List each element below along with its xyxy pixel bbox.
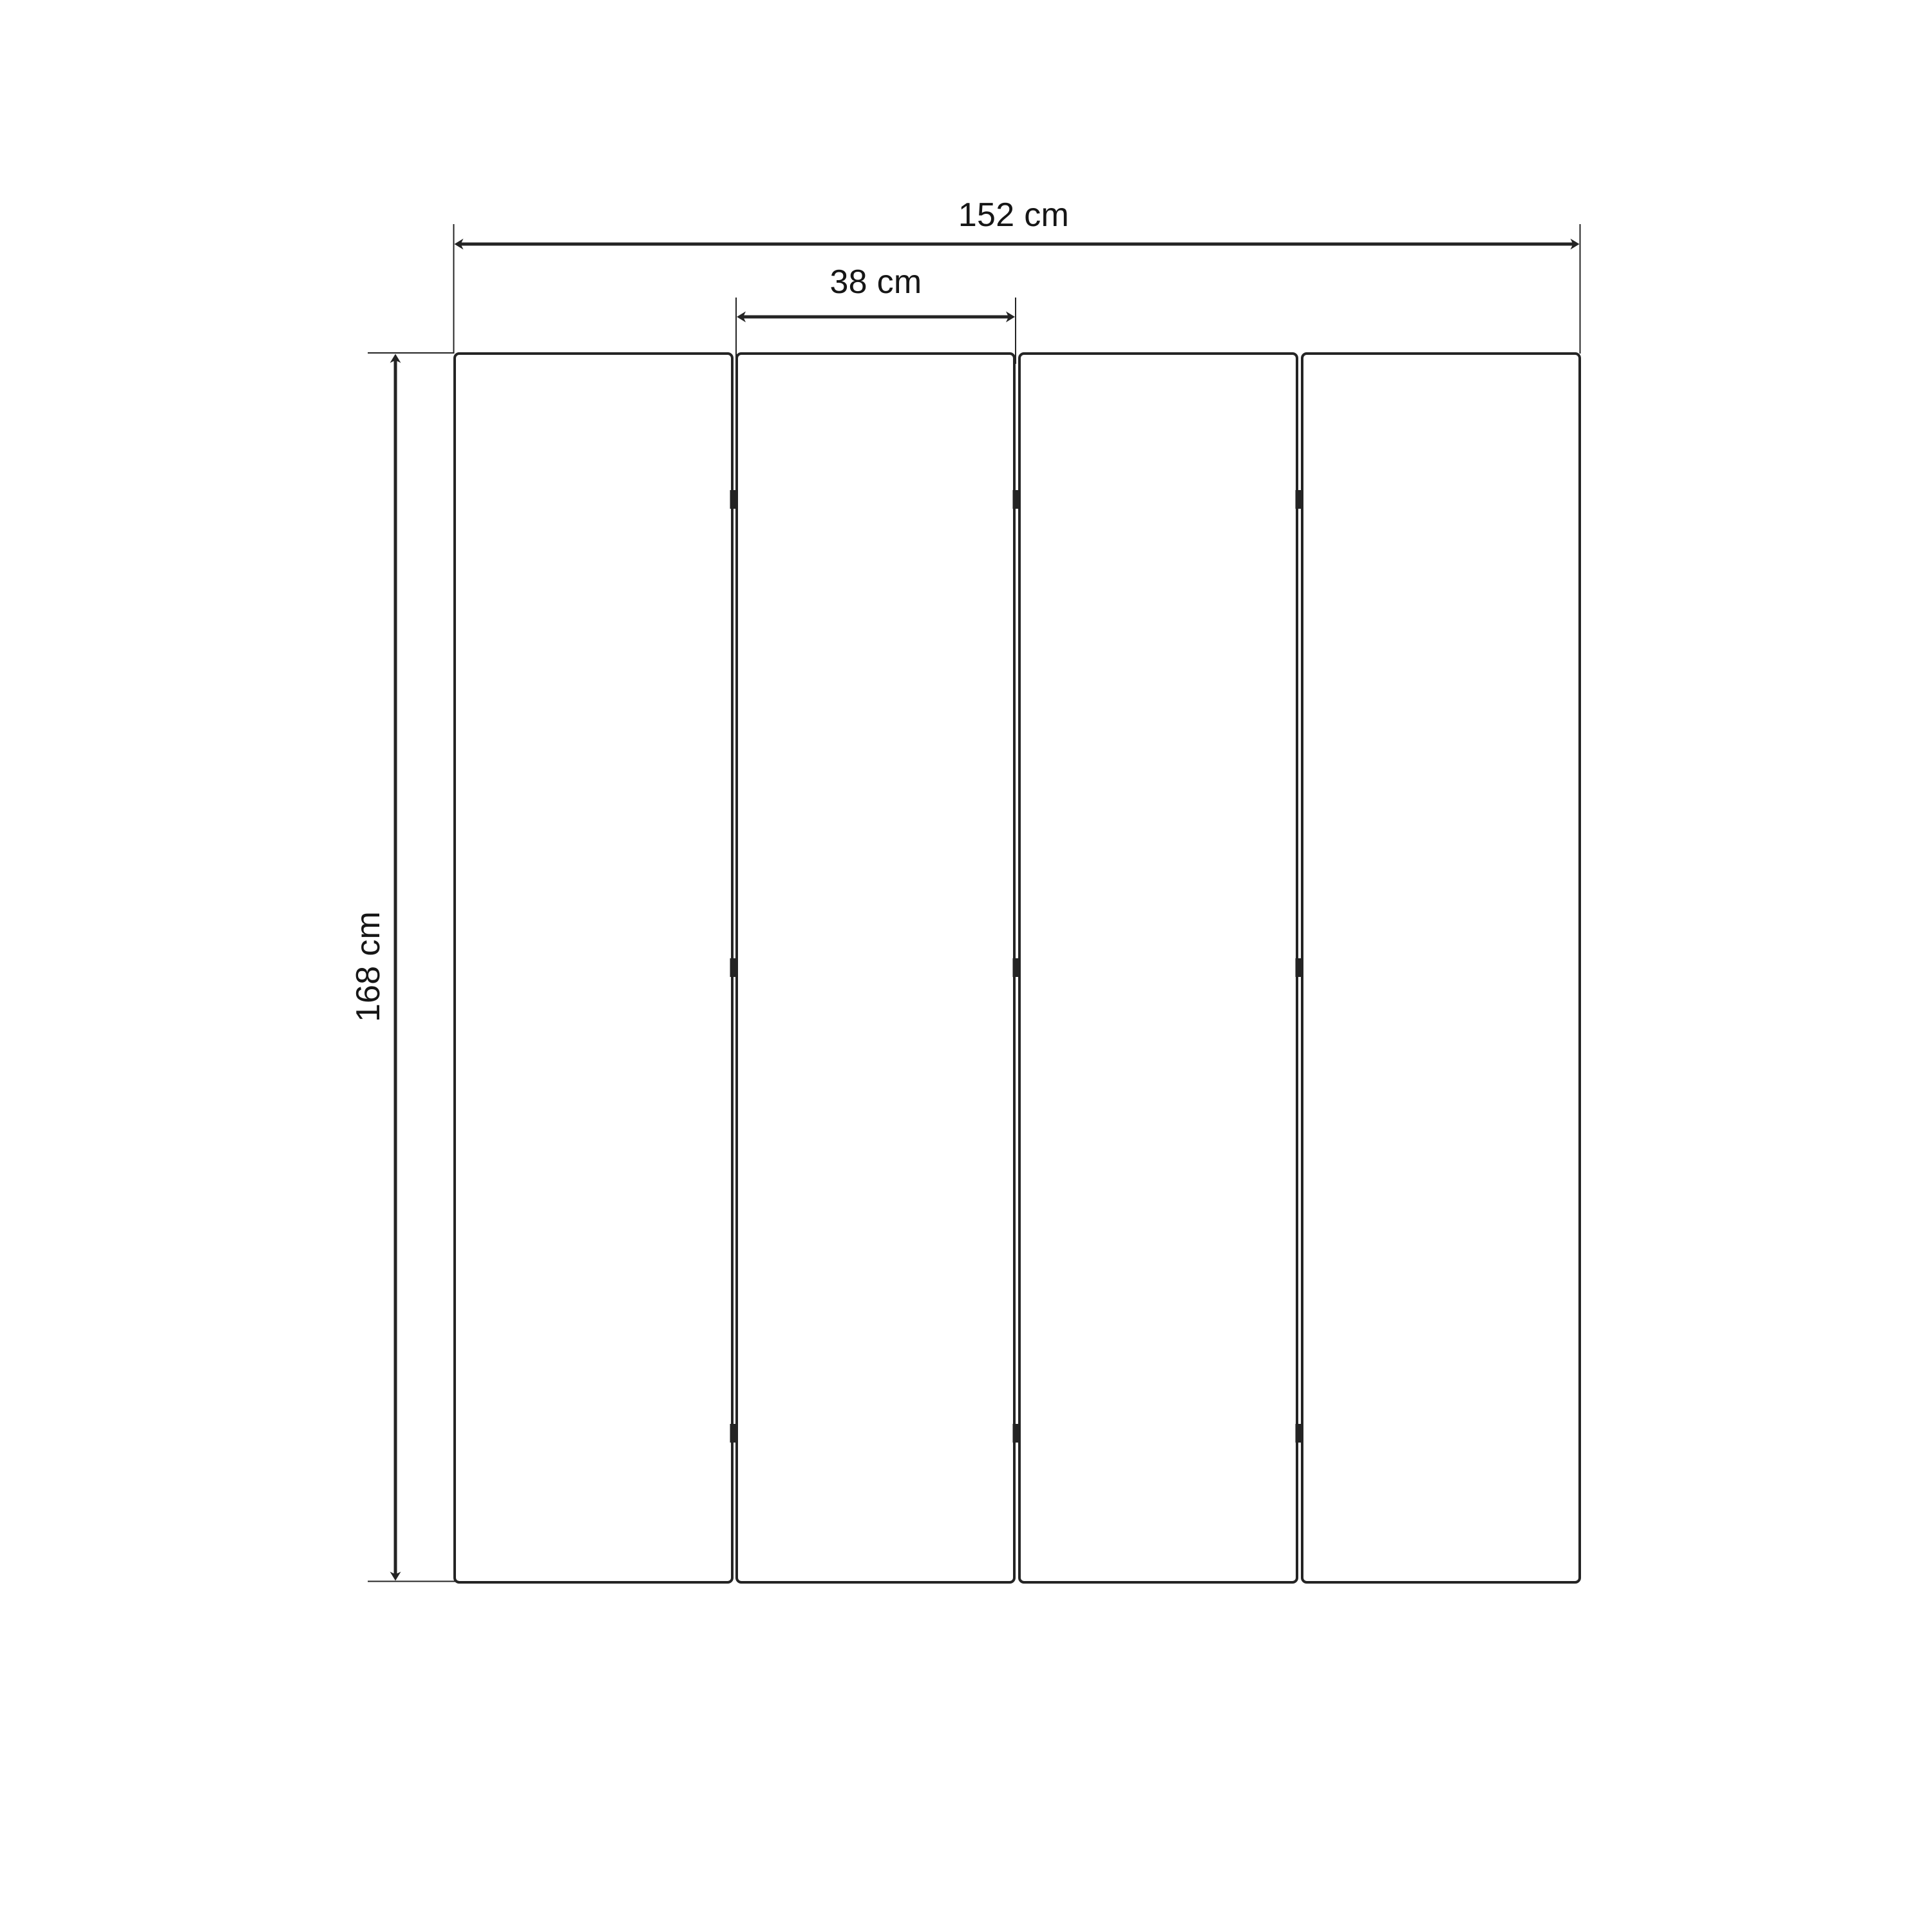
svg-text:38 cm: 38 cm <box>829 263 922 301</box>
svg-text:168 cm: 168 cm <box>350 911 387 1022</box>
svg-text:152 cm: 152 cm <box>958 196 1069 234</box>
